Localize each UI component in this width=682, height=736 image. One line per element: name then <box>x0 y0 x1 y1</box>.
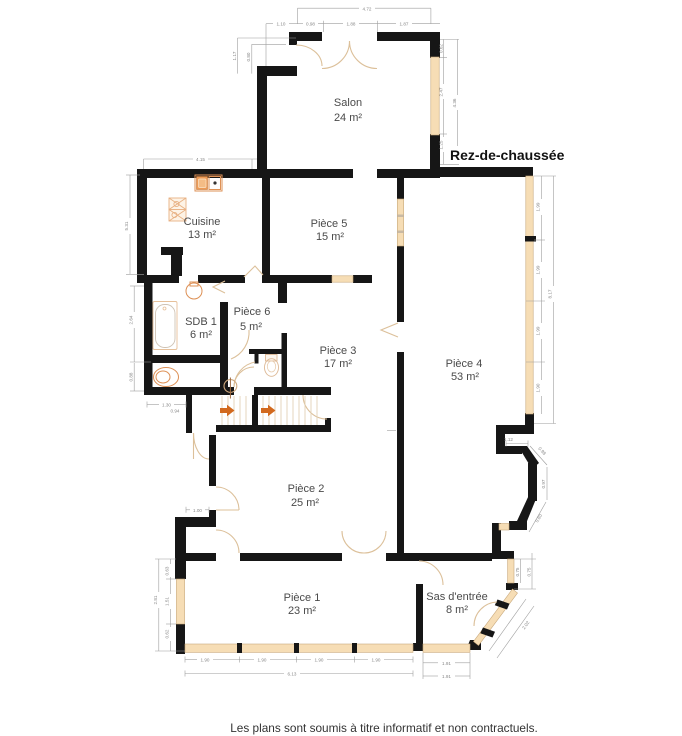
svg-text:2.47: 2.47 <box>439 87 444 96</box>
svg-text:1.90: 1.90 <box>315 658 324 663</box>
svg-text:0.94: 0.94 <box>171 408 180 413</box>
svg-text:1.87: 1.87 <box>400 22 409 27</box>
svg-text:0.75: 0.75 <box>527 567 532 576</box>
svg-text:4.72: 4.72 <box>363 6 372 11</box>
svg-text:1.00: 1.00 <box>193 508 202 513</box>
svg-text:1.12: 1.12 <box>504 437 513 442</box>
svg-text:1.91: 1.91 <box>442 674 451 679</box>
svg-text:1.99: 1.99 <box>536 265 541 274</box>
svg-text:Les plans sont soumis à titre: Les plans sont soumis à titre informatif… <box>230 721 538 735</box>
svg-text:Salon: Salon <box>334 97 362 109</box>
svg-text:23 m²: 23 m² <box>288 605 316 617</box>
svg-text:6.13: 6.13 <box>288 672 297 677</box>
svg-text:1.99: 1.99 <box>536 326 541 335</box>
svg-text:Pièce 5: Pièce 5 <box>311 218 348 230</box>
svg-text:Cuisine: Cuisine <box>184 216 221 228</box>
svg-text:0.75: 0.75 <box>515 567 520 576</box>
svg-text:Pièce 3: Pièce 3 <box>320 345 357 357</box>
svg-text:5 m²: 5 m² <box>240 321 262 333</box>
svg-text:15 m²: 15 m² <box>316 231 344 243</box>
svg-text:0.88: 0.88 <box>128 372 133 381</box>
svg-text:5.31: 5.31 <box>124 221 129 230</box>
svg-text:1.25: 1.25 <box>439 140 444 149</box>
svg-text:13 m²: 13 m² <box>188 229 216 241</box>
svg-text:SDB 1: SDB 1 <box>185 316 217 328</box>
svg-text:4.36: 4.36 <box>452 98 457 107</box>
svg-text:Pièce 6: Pièce 6 <box>234 306 271 318</box>
svg-text:2.64: 2.64 <box>128 315 133 324</box>
svg-text:0.62: 0.62 <box>165 629 170 638</box>
svg-text:1.30: 1.30 <box>162 403 171 408</box>
svg-text:8 m²: 8 m² <box>446 604 468 616</box>
svg-text:1.90: 1.90 <box>201 658 210 663</box>
svg-text:8.17: 8.17 <box>548 289 553 298</box>
svg-text:1.51: 1.51 <box>165 597 170 606</box>
svg-text:1.10: 1.10 <box>277 22 286 27</box>
svg-text:Rez-de-chaussée: Rez-de-chaussée <box>450 147 565 163</box>
svg-text:17 m²: 17 m² <box>324 358 352 370</box>
svg-text:1.91: 1.91 <box>442 661 451 666</box>
svg-text:24 m²: 24 m² <box>334 112 362 124</box>
svg-text:53 m²: 53 m² <box>451 371 479 383</box>
svg-text:Pièce 2: Pièce 2 <box>288 483 325 495</box>
svg-text:0.63: 0.63 <box>165 566 170 575</box>
svg-text:1.90: 1.90 <box>536 383 541 392</box>
svg-text:2.81: 2.81 <box>153 595 158 604</box>
svg-text:6 m²: 6 m² <box>190 329 212 341</box>
svg-text:1.90: 1.90 <box>372 658 381 663</box>
svg-text:1.88: 1.88 <box>347 22 356 27</box>
svg-text:Sas d'entrée: Sas d'entrée <box>426 591 487 603</box>
svg-text:Pièce 4: Pièce 4 <box>446 358 483 370</box>
svg-text:0.97: 0.97 <box>541 479 546 488</box>
svg-text:25 m²: 25 m² <box>291 497 319 509</box>
svg-text:0.80: 0.80 <box>246 52 251 61</box>
svg-text:Pièce 1: Pièce 1 <box>284 592 321 604</box>
svg-text:1.90: 1.90 <box>258 658 267 663</box>
svg-text:1.17: 1.17 <box>232 51 237 60</box>
svg-text:1.99: 1.99 <box>536 202 541 211</box>
svg-text:0.62: 0.62 <box>439 44 444 53</box>
svg-text:0.98: 0.98 <box>306 22 315 27</box>
svg-text:4.15: 4.15 <box>196 157 205 162</box>
